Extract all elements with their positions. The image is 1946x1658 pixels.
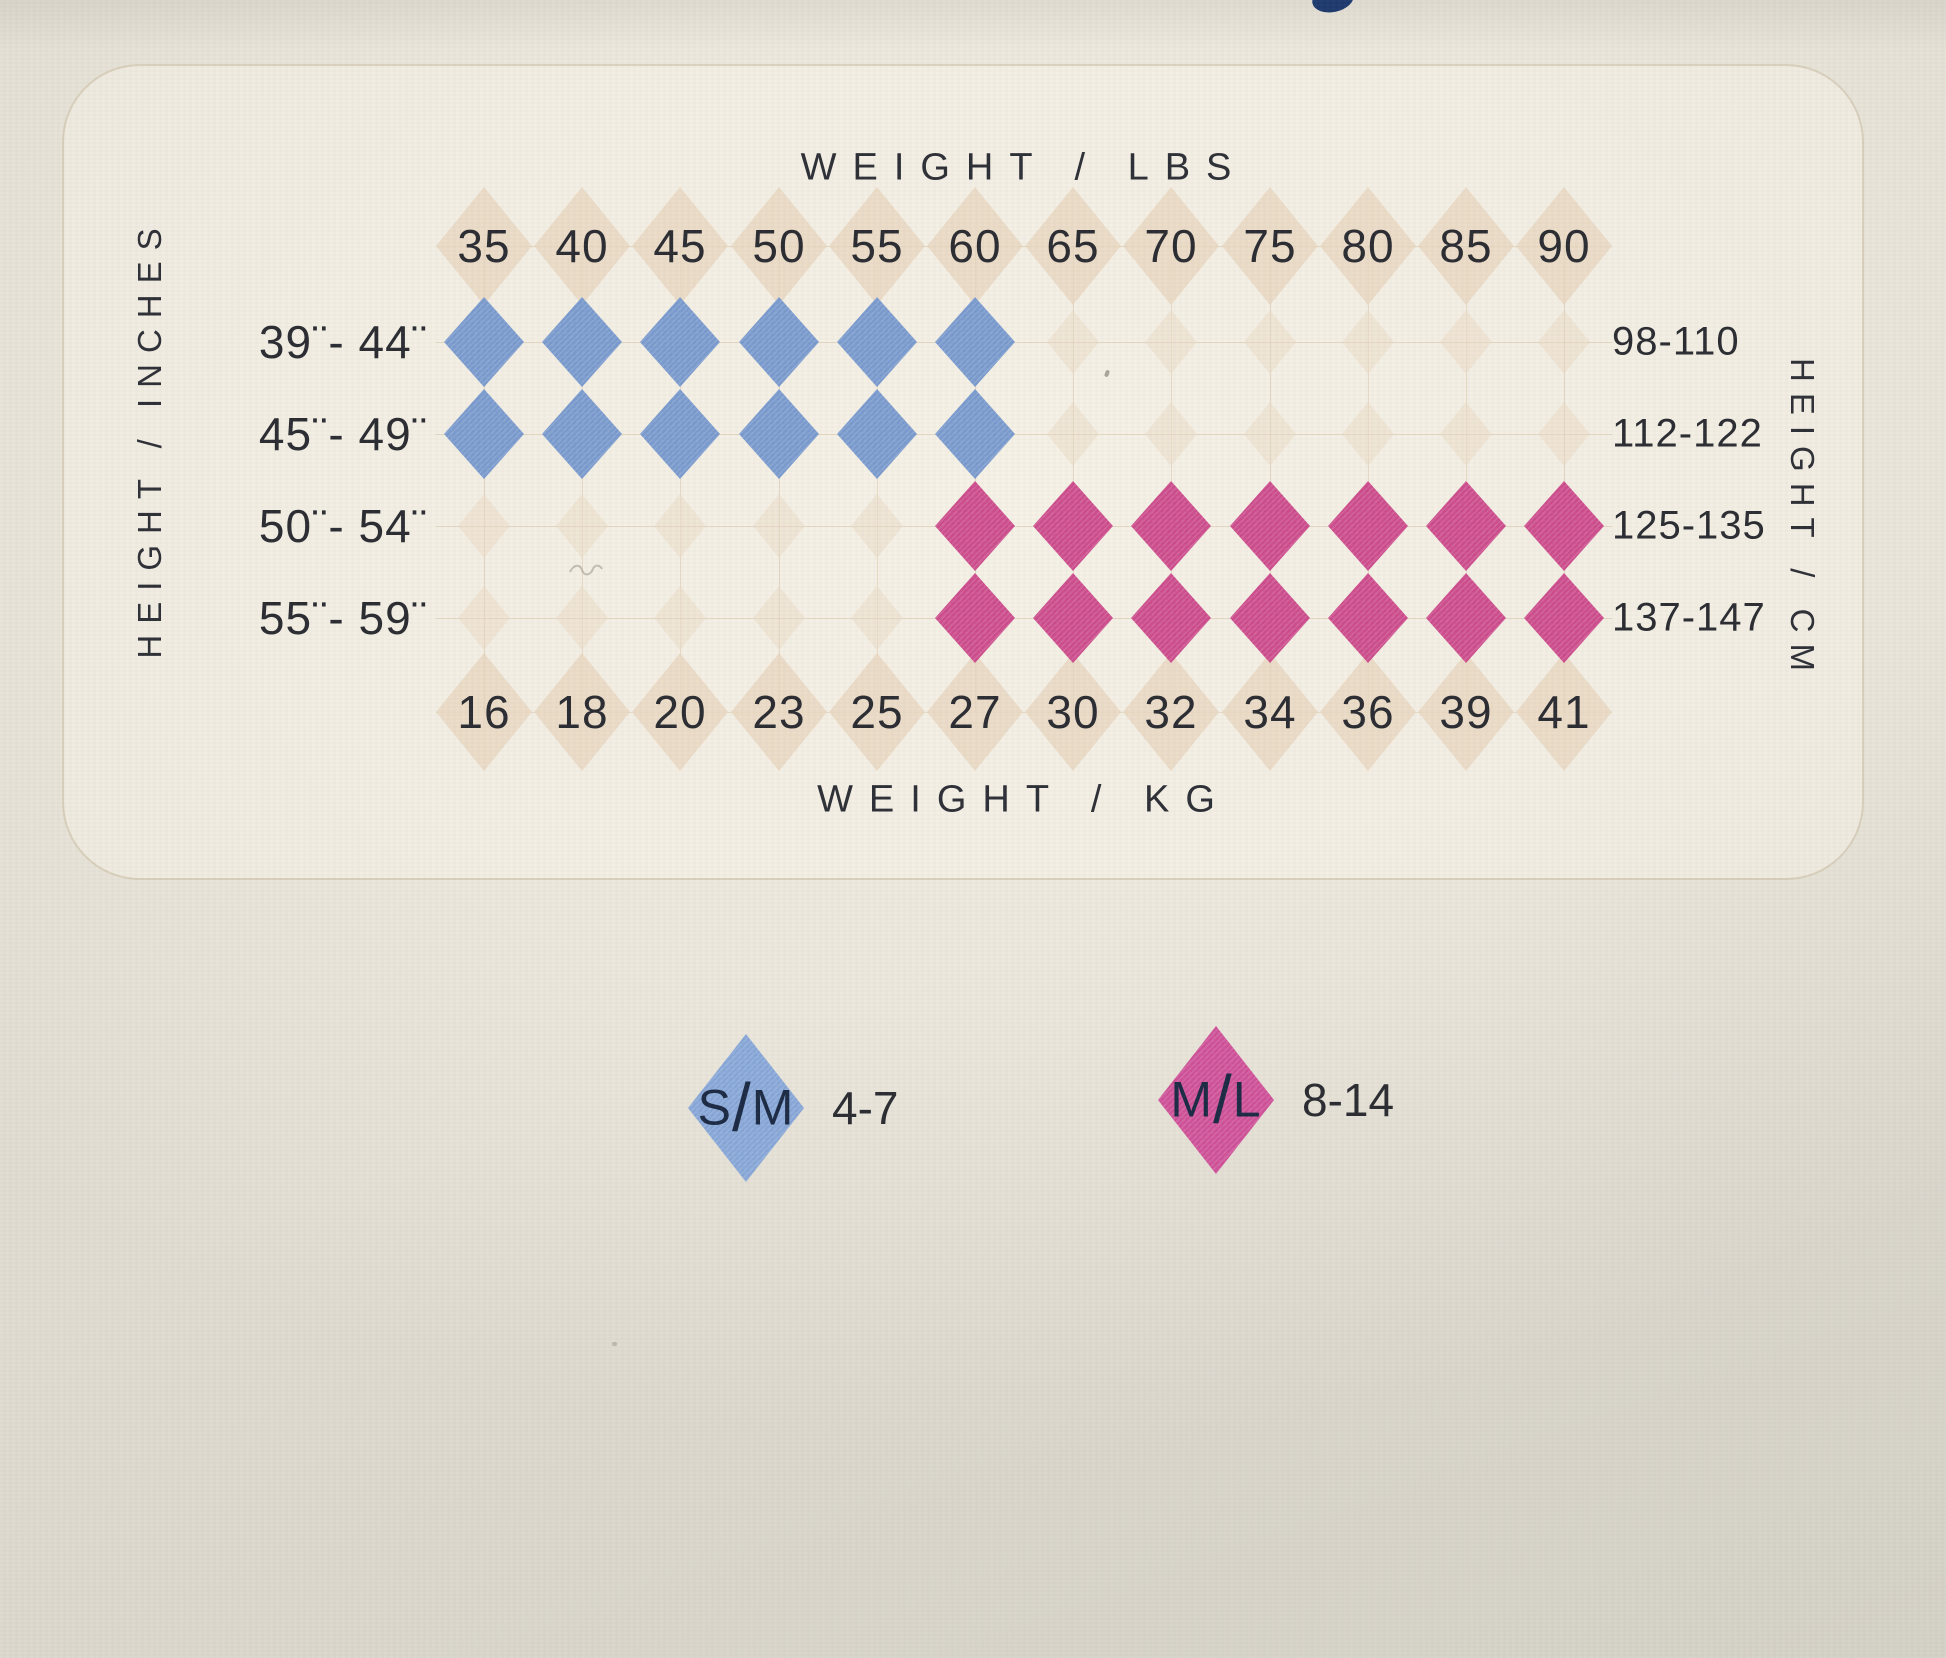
kg-column-label: 23 [752,685,805,739]
weight-lbs-title: WEIGHT / LBS [801,147,1248,190]
row-label-cm: 98-110 [1612,320,1740,365]
height-inches-axis-label: HEIGHT / INCHES [131,217,169,658]
dust-speck [612,1342,617,1346]
kg-column-label: 18 [555,685,608,739]
kg-column-label: 16 [457,685,510,739]
kg-column-label: 25 [850,685,903,739]
legend-range-label: 8-14 [1302,1073,1394,1127]
row-label-inches: 45¨- 49¨ [259,407,428,461]
row-label-inches: 50¨- 54¨ [259,499,428,553]
legend-code-sm: S/M [698,1070,795,1147]
lbs-column-label: 35 [457,219,510,273]
lbs-column-label: 60 [948,219,1001,273]
lbs-column-label: 80 [1341,219,1394,273]
kg-column-label: 27 [948,685,1001,739]
weight-kg-title: WEIGHT / KG [817,779,1231,822]
row-label-inches: 55¨- 59¨ [259,591,428,645]
lbs-column-label: 50 [752,219,805,273]
lbs-column-label: 90 [1537,219,1590,273]
kg-column-label: 39 [1439,685,1492,739]
kg-column-label: 20 [653,685,706,739]
legend-range-label: 4-7 [832,1081,898,1135]
lbs-column-label: 65 [1046,219,1099,273]
size-chart-photo: WEIGHT / LBS HEIGHT / INCHES HEIGHT / CM… [0,0,1946,1658]
lbs-column-label: 75 [1243,219,1296,273]
lbs-column-label: 85 [1439,219,1492,273]
kg-column-label: 30 [1046,685,1099,739]
lbs-column-label: 55 [850,219,903,273]
kg-column-label: 36 [1341,685,1394,739]
lbs-column-label: 40 [555,219,608,273]
row-label-cm: 125-135 [1612,504,1766,549]
lbs-column-label: 70 [1144,219,1197,273]
row-label-inches: 39¨- 44¨ [259,315,428,369]
photo-artifact-ink-blob [1310,0,1356,16]
height-cm-axis-label: HEIGHT / CM [1783,358,1821,682]
pencil-squiggle-mark [566,556,626,582]
kg-column-label: 41 [1537,685,1590,739]
legend-code-ml: M/L [1170,1062,1261,1139]
lbs-column-label: 45 [653,219,706,273]
kg-column-label: 32 [1144,685,1197,739]
row-label-cm: 137-147 [1612,596,1766,641]
kg-column-label: 34 [1243,685,1296,739]
row-label-cm: 112-122 [1612,412,1763,457]
